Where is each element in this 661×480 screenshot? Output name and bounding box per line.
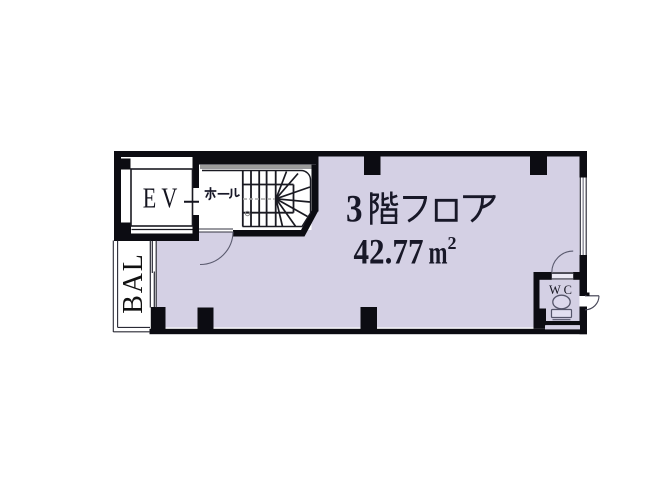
- svg-text:2: 2: [448, 233, 457, 253]
- svg-text:W C: W C: [549, 283, 572, 297]
- svg-text:BAL: BAL: [118, 252, 149, 313]
- svg-text:42.77: 42.77: [354, 232, 424, 272]
- svg-text:m: m: [429, 236, 448, 272]
- svg-text:3: 3: [346, 187, 363, 231]
- svg-text:E V: E V: [143, 183, 178, 214]
